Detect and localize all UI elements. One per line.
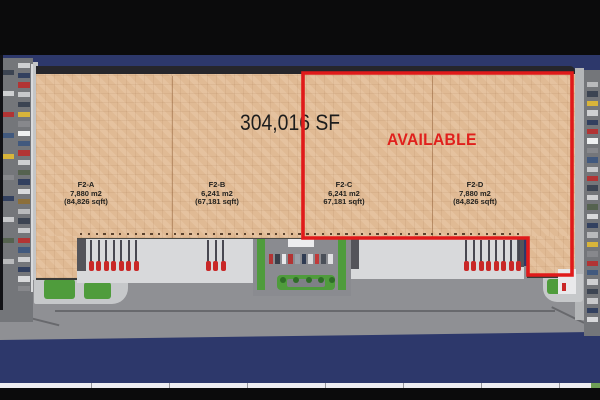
dock-door-icon bbox=[259, 233, 261, 235]
parked-car-icon bbox=[269, 254, 274, 264]
truck-cab-icon bbox=[104, 261, 109, 271]
parked-car-icon bbox=[18, 121, 30, 126]
truck-trailer-icon bbox=[207, 240, 209, 263]
bush-icon bbox=[318, 277, 324, 283]
truck-cab-icon bbox=[221, 261, 226, 271]
dock-door-icon bbox=[283, 233, 285, 235]
parked-car-icon bbox=[587, 120, 598, 125]
unit-divider bbox=[432, 76, 433, 238]
parked-car-icon bbox=[18, 112, 30, 117]
truck-cab-icon bbox=[126, 261, 131, 271]
truck-cab-icon bbox=[96, 261, 101, 271]
parked-car-icon bbox=[18, 238, 30, 243]
parked-car-icon bbox=[275, 254, 280, 264]
bush-icon bbox=[280, 277, 286, 283]
building-wing-left bbox=[36, 236, 77, 280]
truck-cab-icon bbox=[134, 261, 139, 271]
unit-label-f2-a: F2-A 7,880 m2 (84,826 sqft) bbox=[41, 181, 131, 207]
dock-door-icon bbox=[509, 233, 511, 235]
truck-trailer-icon bbox=[113, 240, 115, 263]
dock-door-icon bbox=[462, 233, 464, 235]
parked-car-icon bbox=[18, 218, 30, 223]
dock-door-icon bbox=[111, 233, 113, 235]
dock-door-icon bbox=[150, 233, 152, 235]
parked-car-icon bbox=[562, 283, 566, 291]
dock-door-icon bbox=[408, 233, 410, 235]
unit-area-sqft: 67,181 sqft) bbox=[299, 198, 389, 207]
dock-door-icon bbox=[423, 233, 425, 235]
truck-trailer-icon bbox=[222, 240, 224, 263]
parked-car-icon bbox=[18, 247, 30, 252]
parked-car-icon bbox=[587, 251, 598, 256]
dock-door-icon bbox=[306, 233, 308, 235]
truck-trailer-icon bbox=[215, 240, 217, 263]
dock-door-icon bbox=[337, 233, 339, 235]
entrance-canopy bbox=[288, 239, 314, 247]
parked-car-icon bbox=[3, 70, 14, 75]
dock-door-icon bbox=[267, 233, 269, 235]
curb-line bbox=[55, 310, 555, 312]
truck-cab-icon bbox=[111, 261, 116, 271]
parked-car-icon bbox=[315, 254, 320, 264]
unit-area-sqft: (84,826 sqft) bbox=[430, 198, 520, 207]
parked-car-icon bbox=[18, 267, 30, 272]
dock-door-icon bbox=[376, 233, 378, 235]
bush-icon bbox=[329, 277, 335, 283]
parked-car-icon bbox=[18, 63, 30, 68]
truck-cab-icon bbox=[479, 261, 484, 271]
dock-door-icon bbox=[174, 233, 176, 235]
parked-car-icon bbox=[18, 150, 30, 155]
truck-trailer-icon bbox=[128, 240, 130, 263]
dock-apron-left bbox=[77, 238, 254, 283]
parked-car-icon bbox=[3, 175, 14, 180]
dock-door-icon bbox=[400, 233, 402, 235]
total-area-label: 304,016 SF bbox=[240, 110, 340, 136]
dock-door-icon bbox=[447, 233, 449, 235]
dock-wall bbox=[350, 238, 359, 269]
parked-car-icon bbox=[18, 170, 30, 175]
building-roof bbox=[36, 74, 575, 239]
parked-car-icon bbox=[587, 204, 598, 209]
dock-door-icon bbox=[501, 233, 503, 235]
dock-door-icon bbox=[213, 233, 215, 235]
landscape-patch bbox=[84, 282, 111, 299]
dock-door-icon bbox=[345, 233, 347, 235]
parked-car-icon bbox=[587, 157, 598, 162]
truck-cab-icon bbox=[501, 261, 506, 271]
parked-car-icon bbox=[587, 101, 598, 106]
truck-cab-icon bbox=[89, 261, 94, 271]
dock-door-icon bbox=[384, 233, 386, 235]
frame-bottom bbox=[0, 388, 600, 400]
unit-divider bbox=[172, 76, 173, 238]
dock-door-icon bbox=[88, 233, 90, 235]
parked-car-icon bbox=[18, 228, 30, 233]
right-entry-pad bbox=[558, 269, 576, 294]
truck-cab-icon bbox=[486, 261, 491, 271]
parked-car-icon bbox=[587, 214, 598, 219]
truck-trailer-icon bbox=[488, 240, 490, 263]
parked-car-icon bbox=[18, 179, 30, 184]
dock-door-icon bbox=[135, 233, 137, 235]
parked-car-icon bbox=[18, 160, 30, 165]
dock-door-icon bbox=[517, 233, 519, 235]
parked-car-icon bbox=[18, 141, 30, 146]
parked-car-icon bbox=[18, 102, 30, 107]
parked-car-icon bbox=[587, 317, 598, 322]
parked-car-icon bbox=[18, 257, 30, 262]
truck-cab-icon bbox=[471, 261, 476, 271]
dock-door-icon bbox=[181, 233, 183, 235]
unit-area-sqft: (84,826 sqft) bbox=[41, 198, 131, 207]
landscape-patch bbox=[44, 279, 75, 299]
truck-trailer-icon bbox=[135, 240, 137, 263]
parked-car-icon bbox=[3, 154, 14, 159]
dock-door-icon bbox=[275, 233, 277, 235]
parked-car-icon bbox=[288, 254, 293, 264]
parked-car-icon bbox=[587, 232, 598, 237]
ruler-tick bbox=[481, 383, 482, 388]
dock-door-icon bbox=[236, 233, 238, 235]
dock-door-icon bbox=[291, 233, 293, 235]
parked-car-icon bbox=[282, 254, 287, 264]
dock-door-icon bbox=[470, 233, 472, 235]
truck-cab-icon bbox=[509, 261, 514, 271]
parked-car-icon bbox=[302, 254, 307, 264]
dock-door-icon bbox=[486, 233, 488, 235]
truck-trailer-icon bbox=[120, 240, 122, 263]
parked-car-icon bbox=[321, 254, 326, 264]
parked-car-icon bbox=[18, 286, 30, 291]
truck-trailer-icon bbox=[480, 240, 482, 263]
parked-car-icon bbox=[3, 196, 14, 201]
parked-car-icon bbox=[18, 199, 30, 204]
parked-car-icon bbox=[18, 276, 30, 281]
parked-car-icon bbox=[18, 209, 30, 214]
parked-car-icon bbox=[587, 195, 598, 200]
parked-car-icon bbox=[3, 112, 14, 117]
parked-car-icon bbox=[587, 185, 598, 190]
truck-cab-icon bbox=[119, 261, 124, 271]
parked-car-icon bbox=[587, 129, 598, 134]
parked-car-icon bbox=[3, 91, 14, 96]
parked-car-icon bbox=[587, 289, 598, 294]
dock-door-icon bbox=[80, 233, 82, 235]
truck-cab-icon bbox=[516, 261, 521, 271]
dock-wall bbox=[77, 238, 86, 271]
dock-door-icon bbox=[314, 233, 316, 235]
truck-trailer-icon bbox=[503, 240, 505, 263]
dock-door-icon bbox=[493, 233, 495, 235]
parked-car-icon bbox=[295, 254, 300, 264]
truck-trailer-icon bbox=[495, 240, 497, 263]
bush-icon bbox=[306, 277, 312, 283]
truck-trailer-icon bbox=[473, 240, 475, 263]
truck-trailer-icon bbox=[105, 240, 107, 263]
parked-car-icon bbox=[3, 133, 14, 138]
dock-door-icon bbox=[166, 233, 168, 235]
truck-cab-icon bbox=[464, 261, 469, 271]
parked-car-icon bbox=[3, 259, 14, 264]
unit-area-sqft: (67,181 sqft) bbox=[172, 198, 262, 207]
unit-label-f2-d: F2-D 7,880 m2 (84,826 sqft) bbox=[430, 181, 520, 207]
parked-car-icon bbox=[18, 92, 30, 97]
parked-car-icon bbox=[587, 148, 598, 153]
dock-door-icon bbox=[392, 233, 394, 235]
dock-door-icon bbox=[220, 233, 222, 235]
unit-label-f2-c: F2-C 6,241 m2 67,181 sqft) bbox=[299, 181, 389, 207]
parked-car-icon bbox=[308, 254, 313, 264]
ruler-tick bbox=[247, 383, 248, 388]
dock-door-icon bbox=[369, 233, 371, 235]
entrance-green-strip bbox=[338, 239, 346, 290]
dock-door-icon bbox=[330, 233, 332, 235]
truck-cab-icon bbox=[213, 261, 218, 271]
dock-door-icon bbox=[119, 233, 121, 235]
truck-trailer-icon bbox=[518, 240, 520, 263]
parked-car-icon bbox=[18, 82, 30, 87]
parked-car-icon bbox=[18, 73, 30, 78]
parked-car-icon bbox=[3, 217, 14, 222]
parked-car-icon bbox=[587, 91, 598, 96]
dock-door-icon bbox=[244, 233, 246, 235]
dock-door-icon bbox=[205, 233, 207, 235]
dock-door-icon bbox=[361, 233, 363, 235]
dock-door-icon bbox=[158, 233, 160, 235]
parked-car-icon bbox=[3, 238, 14, 243]
truck-trailer-icon bbox=[90, 240, 92, 263]
dock-door-icon bbox=[298, 233, 300, 235]
dock-door-icon bbox=[127, 233, 129, 235]
ruler-tick bbox=[91, 383, 92, 388]
dock-apron-right bbox=[350, 238, 524, 279]
dock-door-icon bbox=[439, 233, 441, 235]
dock-door-icon bbox=[431, 233, 433, 235]
site-plan-screenshot: 304,016 SF AVAILABLE F2-A 7,880 m2 (84,8… bbox=[0, 0, 600, 400]
frame-top bbox=[0, 0, 600, 55]
dock-door-icon bbox=[454, 233, 456, 235]
parked-car-icon bbox=[587, 110, 598, 115]
ruler-tick bbox=[559, 383, 560, 388]
parked-car-icon bbox=[587, 82, 598, 87]
dock-door-icon bbox=[96, 233, 98, 235]
parked-car-icon bbox=[18, 131, 30, 136]
parked-car-icon bbox=[587, 223, 598, 228]
parked-car-icon bbox=[587, 279, 598, 284]
dock-door-icon bbox=[415, 233, 417, 235]
parked-car-icon bbox=[587, 270, 598, 275]
parked-car-icon bbox=[587, 176, 598, 181]
dock-door-icon bbox=[142, 233, 144, 235]
available-label: AVAILABLE bbox=[387, 130, 477, 150]
parked-car-icon bbox=[587, 138, 598, 143]
dock-door-icon bbox=[103, 233, 105, 235]
dock-door-icon bbox=[478, 233, 480, 235]
dock-door-icon bbox=[353, 233, 355, 235]
truck-trailer-icon bbox=[510, 240, 512, 263]
truck-cab-icon bbox=[206, 261, 211, 271]
dock-door-icon bbox=[252, 233, 254, 235]
parked-car-icon bbox=[587, 298, 598, 303]
dock-door-icon bbox=[322, 233, 324, 235]
parked-car-icon bbox=[587, 167, 598, 172]
ruler-tick bbox=[325, 383, 326, 388]
dock-door-icon bbox=[197, 233, 199, 235]
parked-car-icon bbox=[328, 254, 333, 264]
truck-trailer-icon bbox=[98, 240, 100, 263]
ruler-tick bbox=[403, 383, 404, 388]
truck-cab-icon bbox=[494, 261, 499, 271]
entrance-green-strip bbox=[257, 239, 265, 290]
dock-door-icon bbox=[189, 233, 191, 235]
ruler-tick bbox=[169, 383, 170, 388]
dock-door-icon bbox=[228, 233, 230, 235]
parked-car-icon bbox=[18, 189, 30, 194]
parked-car-icon bbox=[587, 308, 598, 313]
truck-trailer-icon bbox=[465, 240, 467, 263]
parked-car-icon bbox=[587, 261, 598, 266]
bush-icon bbox=[293, 277, 299, 283]
parked-car-icon bbox=[587, 242, 598, 247]
unit-label-f2-b: F2-B 6,241 m2 (67,181 sqft) bbox=[172, 181, 262, 207]
